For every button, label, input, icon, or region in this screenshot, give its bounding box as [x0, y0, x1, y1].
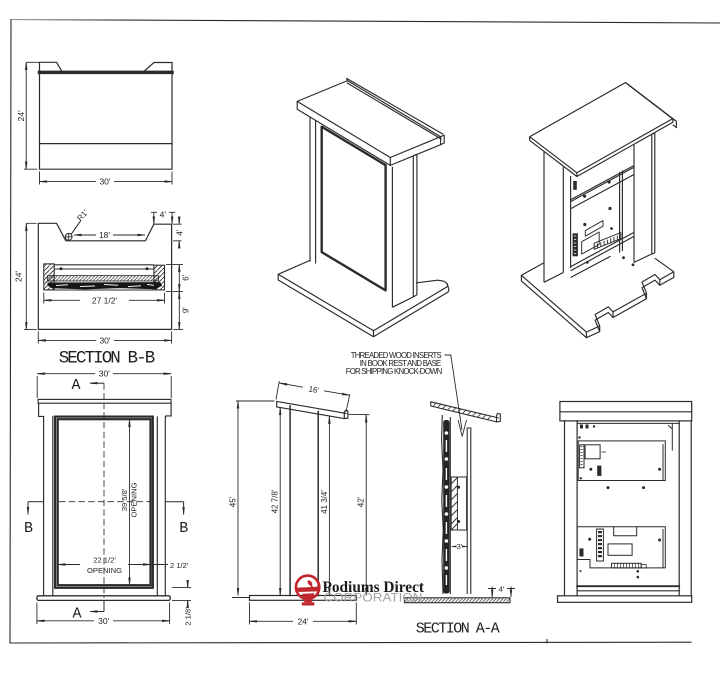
svg-text:SECTION B-B: SECTION B-B — [59, 349, 155, 369]
svg-text:42 7/8': 42 7/8' — [271, 489, 280, 513]
svg-text:24': 24' — [297, 616, 308, 626]
svg-text:4': 4' — [499, 585, 505, 594]
svg-text:FOR SHIPPING KNOCK-DOWN: FOR SHIPPING KNOCK-DOWN — [346, 367, 442, 376]
svg-text:A: A — [72, 606, 81, 623]
svg-text:R1': R1' — [75, 208, 90, 223]
svg-text:30': 30' — [99, 369, 110, 379]
svg-text:2 1/8': 2 1/8' — [184, 607, 193, 626]
svg-text:3': 3' — [457, 542, 463, 551]
svg-text:16': 16' — [308, 385, 320, 396]
svg-text:39 5/8': 39 5/8' — [120, 488, 129, 511]
svg-text:CORPORATION: CORPORATION — [324, 592, 423, 604]
svg-text:24': 24' — [14, 271, 24, 282]
svg-text:OPENING: OPENING — [87, 566, 122, 575]
svg-text:A: A — [71, 377, 80, 394]
svg-text:45': 45' — [228, 496, 237, 507]
svg-text:24': 24' — [16, 110, 26, 121]
svg-text:OPENING: OPENING — [130, 482, 139, 517]
svg-text:4': 4' — [176, 229, 185, 235]
svg-text:9': 9' — [182, 307, 191, 313]
svg-text:30': 30' — [99, 335, 110, 345]
svg-text:18': 18' — [99, 230, 110, 240]
svg-text:B: B — [24, 520, 33, 537]
svg-text:22 1/2': 22 1/2' — [93, 555, 116, 564]
svg-text:30': 30' — [98, 616, 109, 626]
svg-text:SECTION A-A: SECTION A-A — [416, 621, 500, 638]
svg-text:4': 4' — [160, 210, 167, 220]
svg-text:B: B — [179, 520, 188, 537]
svg-text:30': 30' — [99, 177, 110, 187]
svg-text:27 1/2': 27 1/2' — [92, 295, 118, 305]
svg-text:2 1/2': 2 1/2' — [170, 561, 189, 570]
svg-text:42': 42' — [356, 496, 365, 507]
svg-text:41 3/4': 41 3/4' — [320, 490, 329, 514]
svg-text:6': 6' — [182, 274, 191, 280]
